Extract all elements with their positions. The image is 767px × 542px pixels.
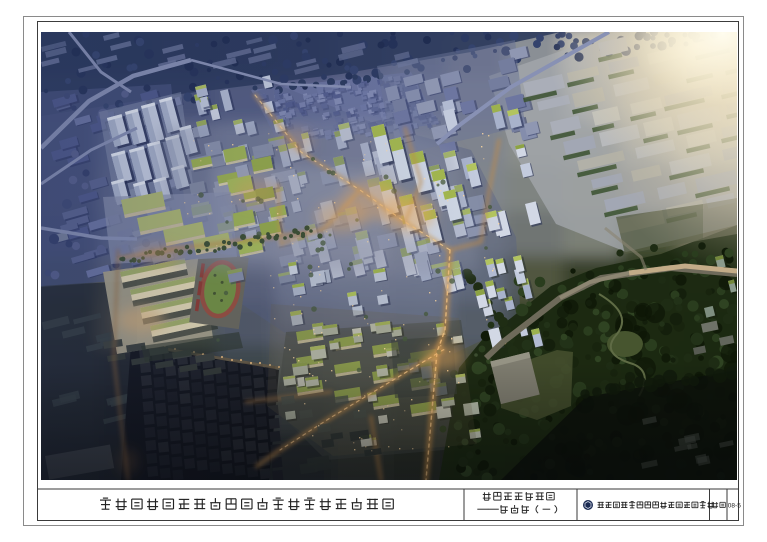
svg-text:08-5: 08-5 [728,503,741,510]
